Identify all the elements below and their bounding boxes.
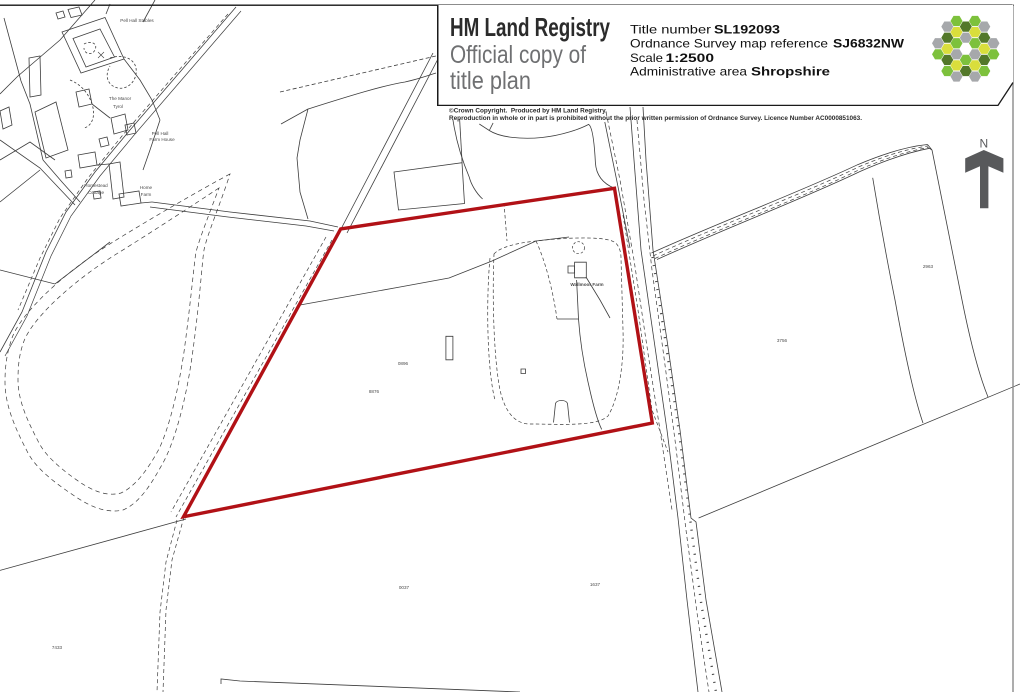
svg-text:0037: 0037 [399,585,410,590]
svg-text:The Manor: The Manor [109,96,132,101]
svg-text:0896: 0896 [398,361,409,366]
svg-text:Pell Hall Stables: Pell Hall Stables [120,18,154,23]
svg-text:Administrative area: Administrative area [630,65,747,79]
svg-text:Title number: Title number [630,23,711,37]
svg-text:Home: Home [140,185,153,190]
svg-text:8876: 8876 [369,389,380,394]
svg-text:Farm: Farm [141,192,152,197]
svg-text:7433: 7433 [52,645,63,650]
svg-text:3756: 3756 [777,338,788,343]
svg-text:Reproduction in whole or in pa: Reproduction in whole or in part is proh… [449,116,862,122]
svg-text:Cottage: Cottage [88,190,105,195]
svg-text:Official copy of: Official copy of [450,41,586,69]
svg-text:Pell Hall: Pell Hall [152,131,169,136]
svg-text:Scale: Scale [630,51,663,65]
svg-text:Ordnance Survey map reference: Ordnance Survey map reference [630,37,828,51]
svg-text:HM Land Registry: HM Land Registry [450,12,610,42]
svg-text:title plan: title plan [450,67,531,95]
svg-text:1637: 1637 [590,582,601,587]
svg-text:Farm House: Farm House [149,137,175,142]
svg-text:1:2500: 1:2500 [666,51,715,65]
svg-text:Homestead: Homestead [84,183,108,188]
svg-text:N: N [979,137,988,151]
svg-text:Wallmoor Farm: Wallmoor Farm [570,282,603,287]
svg-text:Tyrol: Tyrol [113,104,123,109]
svg-text:SJ6832NW: SJ6832NW [833,37,905,51]
svg-text:SL192093: SL192093 [714,23,780,37]
svg-text:©Crown Copyright. Produced by: ©Crown Copyright. Produced by HM Land Re… [449,108,607,115]
svg-text:Shropshire: Shropshire [751,65,830,79]
svg-text:2963: 2963 [923,264,934,269]
